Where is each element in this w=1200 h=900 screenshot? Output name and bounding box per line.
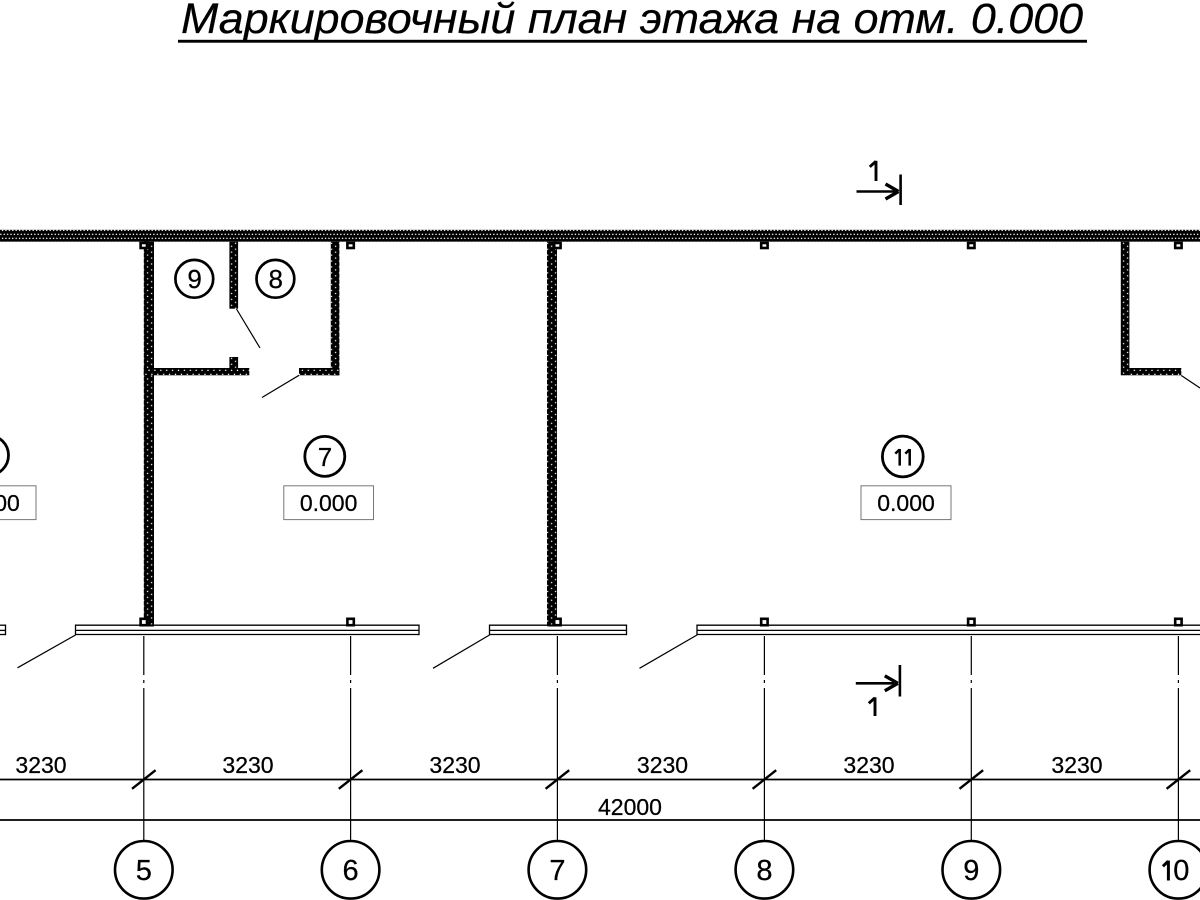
svg-text:7: 7 — [318, 442, 332, 472]
svg-text:42000: 42000 — [598, 794, 662, 820]
svg-text:Маркировочный план этажа на от: Маркировочный план этажа на отм. 0.000 — [181, 0, 1083, 43]
svg-text:0.000: 0.000 — [300, 490, 358, 516]
svg-text:3230: 3230 — [429, 752, 480, 778]
svg-text:6: 6 — [343, 855, 359, 887]
svg-text:3230: 3230 — [843, 752, 894, 778]
svg-text:9: 9 — [187, 264, 201, 294]
svg-text:5: 5 — [136, 855, 152, 887]
svg-text:9: 9 — [963, 855, 979, 887]
svg-text:7: 7 — [549, 855, 565, 887]
svg-text:8: 8 — [756, 855, 772, 887]
svg-text:3230: 3230 — [1051, 752, 1102, 778]
svg-text:0: 0 — [1173, 855, 1189, 887]
svg-text:3230: 3230 — [15, 752, 66, 778]
svg-text:0.000: 0.000 — [877, 490, 935, 516]
svg-text:3230: 3230 — [637, 752, 688, 778]
svg-text:8: 8 — [268, 264, 282, 294]
svg-text:0.000: 0.000 — [0, 490, 20, 516]
svg-text:3230: 3230 — [222, 752, 273, 778]
